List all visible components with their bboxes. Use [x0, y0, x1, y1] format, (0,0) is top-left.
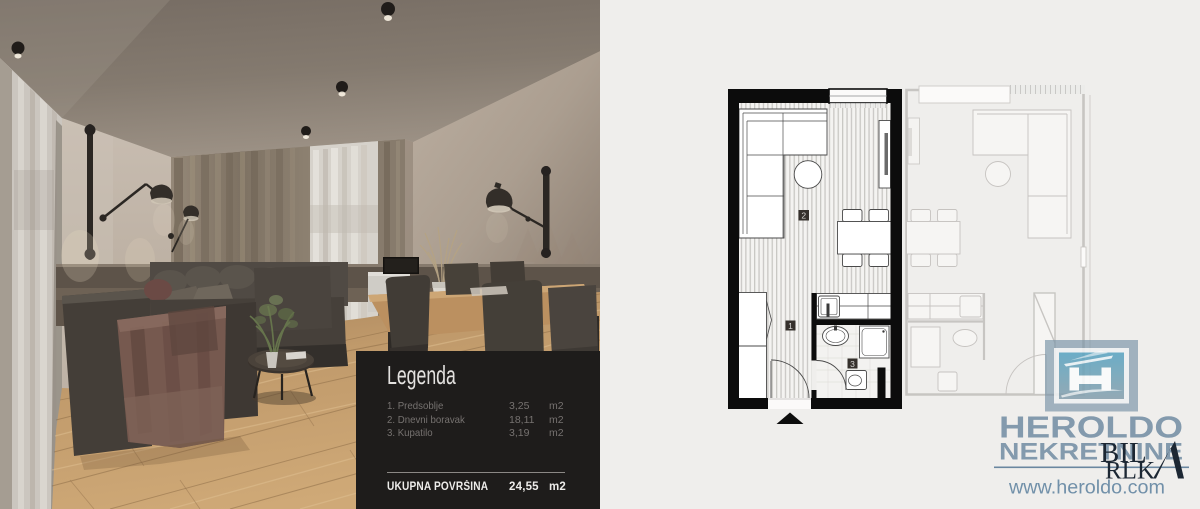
svg-text:NEKRETNINE: NEKRETNINE: [999, 439, 1183, 466]
svg-text:1: 1: [788, 321, 793, 331]
svg-text:www.heroldo.com: www.heroldo.com: [1008, 477, 1165, 499]
svg-text:2: 2: [801, 211, 806, 221]
svg-text:3: 3: [850, 359, 855, 369]
